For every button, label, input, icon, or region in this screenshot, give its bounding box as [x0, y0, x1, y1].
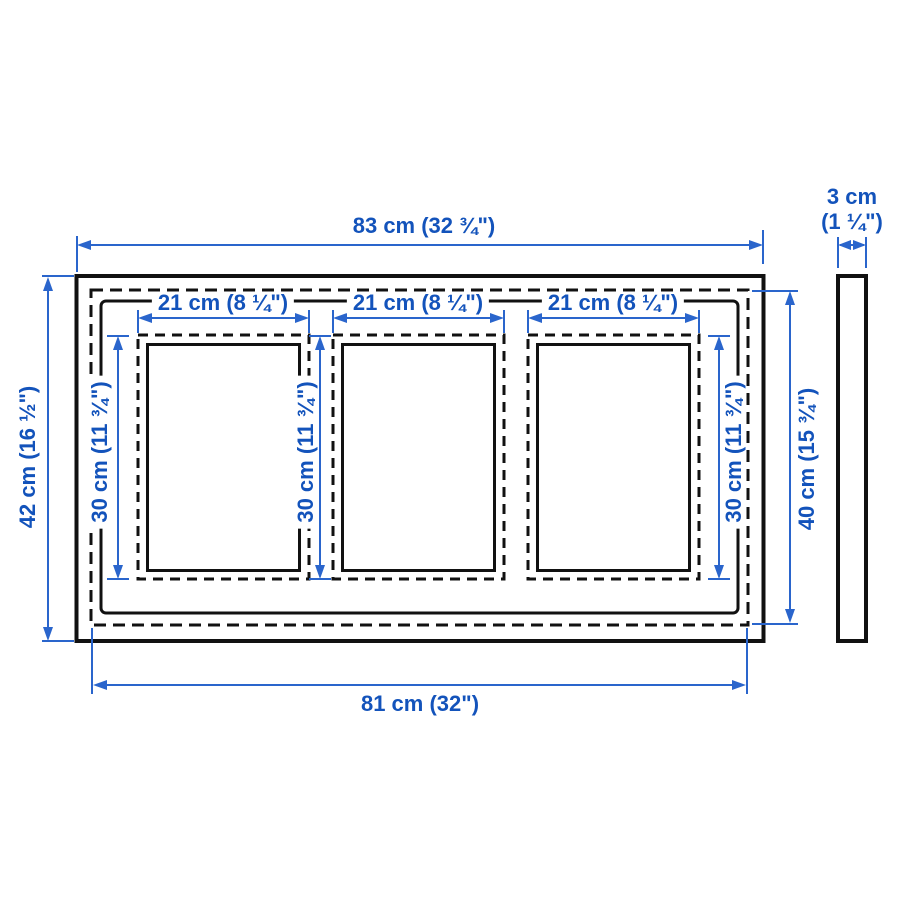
overall-width-label: 83 cm (32 ¾") — [353, 215, 496, 237]
opening-1-width-label: 21 cm (8 ¼") — [152, 292, 294, 314]
inner-width-dimension — [92, 628, 747, 694]
opening-1-height-label: 30 cm (11 ¾") — [89, 375, 111, 528]
glass-dashed-outline — [91, 290, 748, 625]
frame-side-profile-outline — [838, 276, 866, 641]
inner-height-label: 40 cm (15 ¾") — [796, 388, 818, 531]
frame-dimension-diagram: 83 cm (32 ¾") 42 cm (16 ½") 81 cm (32") … — [0, 0, 900, 900]
overall-height-label: 42 cm (16 ½") — [17, 386, 39, 529]
opening-1-cutout-outline — [148, 345, 300, 571]
opening-2-cutout-outline — [343, 345, 495, 571]
opening-3-width-label: 21 cm (8 ¼") — [542, 292, 684, 314]
depth-label-cm: 3 cm — [821, 184, 883, 209]
inner-width-label: 81 cm (32") — [361, 693, 479, 715]
opening-1-photo-dashed-outline — [138, 335, 309, 579]
mat-inner-outline — [101, 301, 738, 613]
opening-3-height-label: 30 cm (11 ¾") — [723, 375, 745, 528]
diagram-line-art — [0, 0, 900, 900]
opening-3-cutout-outline — [538, 345, 690, 571]
inner-height-dimension — [752, 291, 798, 624]
opening-3-photo-dashed-outline — [528, 335, 699, 579]
depth-dimension — [838, 237, 866, 268]
opening-2-width-label: 21 cm (8 ¼") — [347, 292, 489, 314]
overall-height-dimension — [42, 276, 74, 641]
frame-outer-outline — [77, 276, 764, 641]
depth-label-inches: (1 ¼") — [821, 209, 883, 234]
frame-front-view — [77, 276, 764, 641]
opening-2-height-label: 30 cm (11 ¾") — [295, 375, 317, 528]
depth-label: 3 cm (1 ¼") — [821, 184, 883, 234]
opening-2-photo-dashed-outline — [333, 335, 504, 579]
